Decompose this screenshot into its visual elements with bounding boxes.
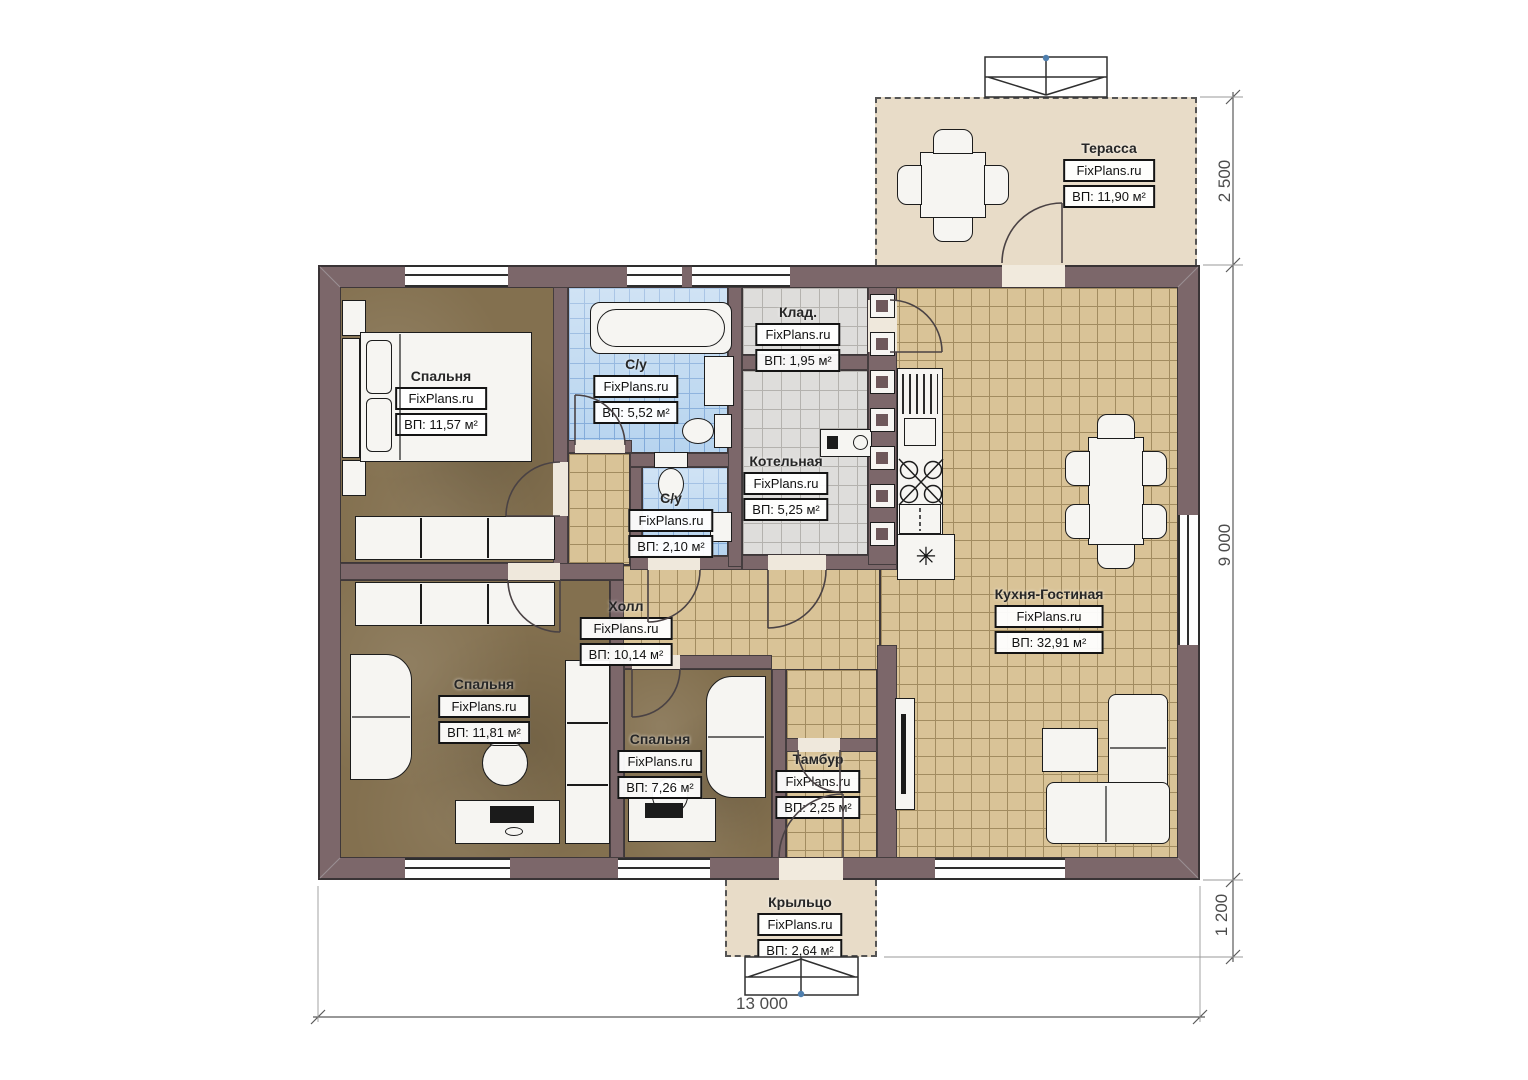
- room-area: ВП: 5,52 м²: [593, 401, 678, 424]
- monitor: [490, 806, 534, 823]
- room-name: Спальня: [617, 731, 702, 747]
- chair: [933, 217, 973, 242]
- chair: [1142, 451, 1167, 486]
- room-name: Котельная: [743, 453, 828, 469]
- watermark: FixPlans.ru: [995, 605, 1104, 628]
- room-name: Спальня: [438, 676, 530, 692]
- room-area: ВП: 1,95 м²: [755, 349, 840, 372]
- flue-core: [876, 452, 888, 464]
- watermark: FixPlans.ru: [593, 375, 678, 398]
- closet-divider: [487, 518, 489, 558]
- bed-headboard: [342, 338, 360, 458]
- wardrobe-divider: [567, 784, 608, 786]
- watermark: FixPlans.ru: [775, 770, 860, 793]
- wall: [553, 287, 568, 580]
- room-name: Терасса: [1063, 140, 1155, 156]
- room-area: ВП: 11,90 м²: [1063, 185, 1155, 208]
- toilet-tank: [654, 452, 688, 468]
- floor-plan: ✳ Терасса FixPlans.ru ВП: 11,90 м² Спаль…: [0, 0, 1528, 1080]
- sink-drain-icon: ✳: [897, 534, 955, 580]
- watermark: FixPlans.ru: [395, 387, 487, 410]
- dimension-house-depth: 9 000: [1195, 515, 1255, 575]
- flue-core: [876, 414, 888, 426]
- room-area: ВП: 2,10 м²: [628, 535, 713, 558]
- window: [935, 858, 1065, 880]
- watermark: FixPlans.ru: [628, 509, 713, 532]
- flue-core: [876, 338, 888, 350]
- bathtub-inner: [597, 309, 725, 347]
- watermark: FixPlans.ru: [1063, 159, 1155, 182]
- closet-divider: [420, 584, 422, 624]
- room-label-boiler: Котельная FixPlans.ru ВП: 5,25 м²: [743, 453, 828, 521]
- chair: [1065, 504, 1090, 539]
- flue-core: [876, 528, 888, 540]
- watermark: FixPlans.ru: [743, 472, 828, 495]
- toilet-bowl: [682, 418, 714, 444]
- nightstand: [342, 300, 366, 336]
- chair: [1097, 544, 1135, 569]
- room-label-kitchen: Кухня-Гостиная FixPlans.ru ВП: 32,91 м²: [995, 586, 1104, 654]
- closet: [355, 516, 555, 560]
- room-label-storage: Клад. FixPlans.ru ВП: 1,95 м²: [755, 304, 840, 372]
- monitor: [645, 803, 683, 818]
- nightstand: [342, 460, 366, 496]
- room-label-porch: Крыльцо FixPlans.ru ВП: 2,64 м²: [757, 894, 842, 962]
- chair: [933, 129, 973, 154]
- room-area: ВП: 10,14 м²: [580, 643, 673, 666]
- chair: [1142, 504, 1167, 539]
- sofa: [350, 654, 412, 780]
- watermark: FixPlans.ru: [580, 617, 673, 640]
- door-gap: [553, 462, 568, 516]
- pillow: [366, 398, 392, 452]
- door-gap: [798, 738, 840, 752]
- wall: [877, 645, 897, 858]
- window: [405, 858, 510, 880]
- watermark: FixPlans.ru: [755, 323, 840, 346]
- room-area: ВП: 2,25 м²: [775, 796, 860, 819]
- room-area: ВП: 7,26 м²: [617, 776, 702, 799]
- terrace-door-opening: [1002, 265, 1065, 287]
- terrace-steps: [985, 55, 1107, 97]
- room-label-bedroom-bm: Спальня FixPlans.ru ВП: 7,26 м²: [617, 731, 702, 799]
- room-area: ВП: 11,57 м²: [395, 413, 487, 436]
- closet-divider: [487, 584, 489, 624]
- dimension-terrace-depth: 2 500: [1195, 151, 1255, 211]
- room-area: ВП: 11,81 м²: [438, 721, 530, 744]
- chair: [984, 165, 1009, 205]
- flue-core: [876, 376, 888, 388]
- bath-cabinet: [704, 356, 734, 406]
- watermark: FixPlans.ru: [438, 695, 530, 718]
- porch-steps: [745, 957, 858, 997]
- flue-core: [876, 300, 888, 312]
- terrace-table: [920, 152, 986, 218]
- room-label-bath-small: С/у FixPlans.ru ВП: 2,10 м²: [628, 490, 713, 558]
- room-area: ВП: 32,91 м²: [995, 631, 1104, 654]
- room-label-bedroom-tl: Спальня FixPlans.ru ВП: 11,57 м²: [395, 368, 487, 436]
- corner-sofa-horizontal: [1046, 782, 1170, 844]
- room-name: С/у: [593, 356, 678, 372]
- wall: [340, 563, 624, 580]
- flue-core: [876, 490, 888, 502]
- closet-divider: [420, 518, 422, 558]
- room-name: Холл: [580, 598, 673, 614]
- window: [618, 858, 710, 880]
- corridor-floor: [568, 453, 630, 565]
- porch-door-opening: [779, 858, 843, 880]
- coffee-table: [1042, 728, 1098, 772]
- room-name: Крыльцо: [757, 894, 842, 910]
- wardrobe-divider: [567, 722, 608, 724]
- dishwasher: [899, 504, 941, 534]
- room-label-terrace: Терасса FixPlans.ru ВП: 11,90 м²: [1063, 140, 1155, 208]
- room-label-tambour: Тамбур FixPlans.ru ВП: 2,25 м²: [775, 751, 860, 819]
- room-area: ВП: 5,25 м²: [743, 498, 828, 521]
- dimension-house-width: 13 000: [722, 994, 802, 1014]
- tv-screen: [901, 714, 906, 794]
- room-label-bath-main: С/у FixPlans.ru ВП: 5,52 м²: [593, 356, 678, 424]
- boiler-switch: [827, 436, 838, 449]
- armchair: [482, 740, 528, 786]
- toilet-tank: [714, 414, 732, 448]
- wardrobe: [565, 660, 610, 844]
- room-name: Кухня-Гостиная: [995, 586, 1104, 602]
- pillow: [366, 340, 392, 394]
- window: [627, 265, 682, 287]
- sofa: [706, 676, 766, 798]
- door-gap: [508, 563, 560, 580]
- dining-table: [1088, 437, 1144, 545]
- window: [405, 265, 508, 287]
- watermark: FixPlans.ru: [757, 913, 842, 936]
- closet: [355, 582, 555, 626]
- chair: [897, 165, 922, 205]
- room-area: ВП: 2,64 м²: [757, 939, 842, 962]
- oven: [904, 418, 936, 446]
- keyboard: [505, 827, 523, 836]
- window: [692, 265, 790, 287]
- fridge-vent: [902, 374, 938, 414]
- room-name: Клад.: [755, 304, 840, 320]
- door-gap: [768, 555, 826, 570]
- door-gap: [648, 556, 700, 570]
- room-name: Тамбур: [775, 751, 860, 767]
- door-gap: [575, 440, 625, 453]
- room-label-bedroom-bl: Спальня FixPlans.ru ВП: 11,81 м²: [438, 676, 530, 744]
- dimension-porch-depth: 1 200: [1192, 885, 1252, 945]
- room-name: С/у: [628, 490, 713, 506]
- chair: [1097, 414, 1135, 439]
- room-name: Спальня: [395, 368, 487, 384]
- chair: [1065, 451, 1090, 486]
- boiler-dial: [853, 435, 868, 450]
- room-label-hall: Холл FixPlans.ru ВП: 10,14 м²: [580, 598, 673, 666]
- watermark: FixPlans.ru: [617, 750, 702, 773]
